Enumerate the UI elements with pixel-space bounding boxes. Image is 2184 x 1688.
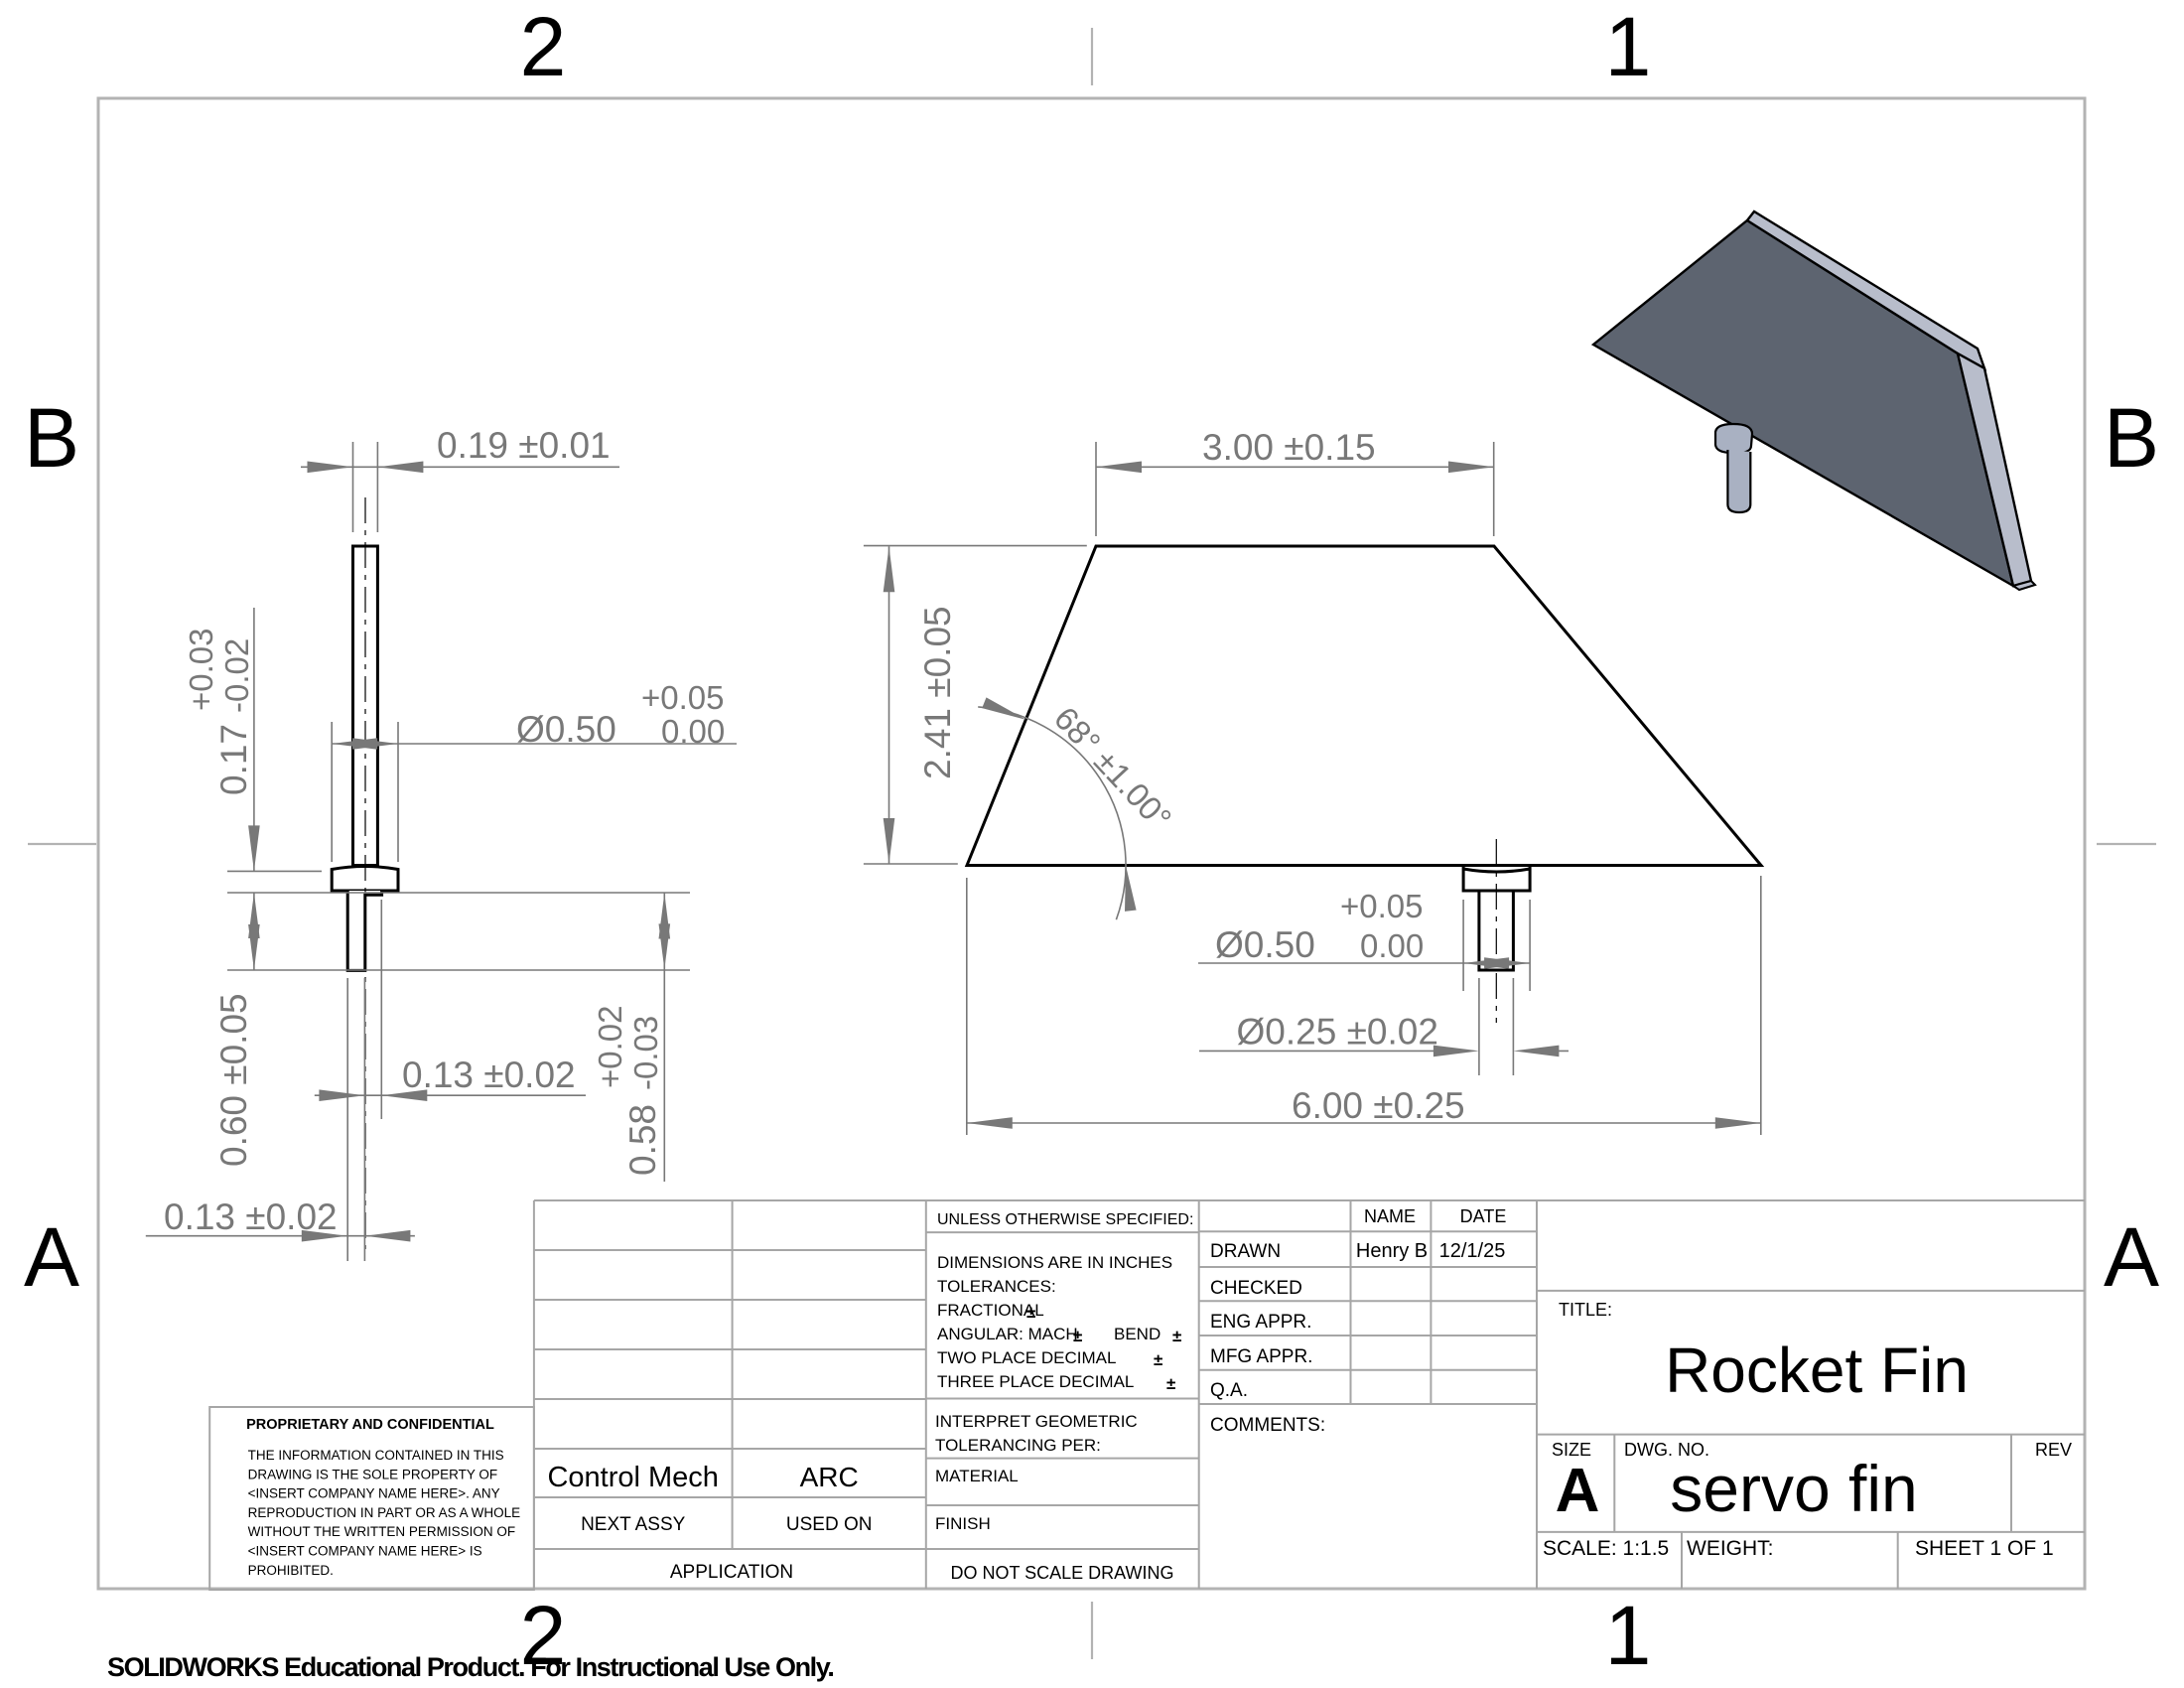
svg-text:±: ± bbox=[1166, 1374, 1175, 1393]
svg-text:<INSERT COMPANY NAME HERE>. A: <INSERT COMPANY NAME HERE>. ANY bbox=[248, 1486, 500, 1501]
svg-text:0.17: 0.17 bbox=[213, 724, 254, 795]
svg-text:Rocket Fin: Rocket Fin bbox=[1665, 1335, 1969, 1406]
svg-text:+0.02: +0.02 bbox=[592, 1006, 628, 1089]
svg-text:A: A bbox=[24, 1210, 79, 1304]
svg-text:DRAWING IS THE SOLE PROPERTY O: DRAWING IS THE SOLE PROPERTY OF bbox=[248, 1467, 498, 1481]
svg-text:ANGULAR: MACH: ANGULAR: MACH bbox=[937, 1325, 1078, 1343]
svg-text:0.00: 0.00 bbox=[1360, 927, 1424, 964]
svg-text:THE INFORMATION CONTAINED IN T: THE INFORMATION CONTAINED IN THIS bbox=[248, 1448, 504, 1463]
svg-text:servo fin: servo fin bbox=[1670, 1452, 1917, 1525]
svg-text:PROHIBITED.: PROHIBITED. bbox=[248, 1563, 334, 1578]
svg-text:A: A bbox=[2104, 1210, 2159, 1304]
svg-text:INTERPRET GEOMETRIC: INTERPRET GEOMETRIC bbox=[935, 1412, 1138, 1431]
svg-text:±: ± bbox=[1073, 1327, 1082, 1345]
svg-text:APPLICATION: APPLICATION bbox=[670, 1562, 793, 1583]
svg-text:±: ± bbox=[1172, 1327, 1181, 1345]
svg-text:NAME: NAME bbox=[1364, 1206, 1416, 1226]
svg-text:+0.05: +0.05 bbox=[641, 679, 725, 716]
svg-text:REPRODUCTION IN PART OR AS A W: REPRODUCTION IN PART OR AS A WHOLE bbox=[248, 1505, 521, 1520]
svg-text:TOLERANCES:: TOLERANCES: bbox=[937, 1277, 1056, 1296]
svg-text:DATE: DATE bbox=[1460, 1206, 1507, 1226]
svg-text:WEIGHT:: WEIGHT: bbox=[1687, 1537, 1774, 1560]
svg-text:1: 1 bbox=[1605, 1589, 1652, 1682]
svg-text:6.00 ±0.25: 6.00 ±0.25 bbox=[1292, 1085, 1465, 1126]
svg-text:REV: REV bbox=[2035, 1440, 2072, 1460]
svg-text:Ø0.25 ±0.02: Ø0.25 ±0.02 bbox=[1237, 1011, 1438, 1052]
svg-text:TITLE:: TITLE: bbox=[1559, 1300, 1612, 1320]
svg-text:Henry B: Henry B bbox=[1356, 1240, 1428, 1262]
svg-text:DIMENSIONS ARE IN INCHES: DIMENSIONS ARE IN INCHES bbox=[937, 1253, 1172, 1272]
svg-text:Control Mech: Control Mech bbox=[547, 1462, 718, 1493]
svg-text:<INSERT COMPANY NAME HERE> IS: <INSERT COMPANY NAME HERE> IS bbox=[248, 1544, 482, 1559]
svg-text:DO NOT SCALE DRAWING: DO NOT SCALE DRAWING bbox=[950, 1563, 1173, 1583]
svg-text:Ø0.50: Ø0.50 bbox=[1215, 924, 1315, 965]
svg-text:+0.03: +0.03 bbox=[183, 629, 219, 712]
svg-text:-0.03: -0.03 bbox=[627, 1016, 664, 1090]
svg-text:A: A bbox=[1556, 1457, 1600, 1525]
svg-text:COMMENTS:: COMMENTS: bbox=[1210, 1415, 1325, 1436]
svg-text:+0.05: +0.05 bbox=[1340, 888, 1424, 924]
svg-text:0.58: 0.58 bbox=[622, 1104, 663, 1176]
svg-text:SHEET 1 OF 1: SHEET 1 OF 1 bbox=[1915, 1537, 2054, 1560]
svg-text:B: B bbox=[24, 391, 79, 485]
svg-text:ARC: ARC bbox=[800, 1462, 859, 1492]
svg-text:CHECKED: CHECKED bbox=[1210, 1278, 1302, 1299]
svg-text:THREE PLACE DECIMAL: THREE PLACE DECIMAL bbox=[937, 1372, 1134, 1391]
svg-text:±: ± bbox=[1026, 1303, 1035, 1322]
svg-text:0.19 ±0.01: 0.19 ±0.01 bbox=[437, 425, 611, 466]
svg-text:PROPRIETARY AND CONFIDENTIAL: PROPRIETARY AND CONFIDENTIAL bbox=[246, 1417, 494, 1433]
svg-text:±: ± bbox=[1154, 1350, 1162, 1369]
svg-text:Q.A.: Q.A. bbox=[1210, 1380, 1248, 1401]
svg-text:0.13 ±0.02: 0.13 ±0.02 bbox=[402, 1055, 576, 1095]
svg-text:MFG APPR.: MFG APPR. bbox=[1210, 1346, 1312, 1367]
svg-text:UNLESS OTHERWISE SPECIFIED:: UNLESS OTHERWISE SPECIFIED: bbox=[937, 1211, 1193, 1228]
svg-text:TOLERANCING PER:: TOLERANCING PER: bbox=[935, 1436, 1101, 1455]
svg-text:FINISH: FINISH bbox=[935, 1514, 991, 1533]
svg-text:USED ON: USED ON bbox=[786, 1514, 873, 1535]
svg-text:SCALE: 1:1.5: SCALE: 1:1.5 bbox=[1543, 1537, 1669, 1560]
svg-text:2: 2 bbox=[520, 0, 567, 93]
svg-text:MATERIAL: MATERIAL bbox=[935, 1467, 1019, 1485]
svg-text:0.60 ±0.05: 0.60 ±0.05 bbox=[213, 993, 254, 1167]
svg-text:WITHOUT THE WRITTEN PERMISSION: WITHOUT THE WRITTEN PERMISSION OF bbox=[248, 1524, 515, 1539]
svg-text:0.13 ±0.02: 0.13 ±0.02 bbox=[164, 1196, 338, 1237]
svg-text:NEXT ASSY: NEXT ASSY bbox=[581, 1514, 686, 1535]
svg-text:TWO PLACE DECIMAL: TWO PLACE DECIMAL bbox=[937, 1348, 1116, 1367]
svg-text:12/1/25: 12/1/25 bbox=[1439, 1240, 1506, 1262]
svg-text:SOLIDWORKS Educational Product: SOLIDWORKS Educational Product. For Inst… bbox=[107, 1652, 833, 1682]
svg-text:BEND: BEND bbox=[1114, 1325, 1160, 1343]
svg-text:ENG APPR.: ENG APPR. bbox=[1210, 1312, 1311, 1333]
svg-text:1: 1 bbox=[1605, 0, 1652, 93]
svg-text:DRAWN: DRAWN bbox=[1210, 1241, 1281, 1262]
svg-text:-0.02: -0.02 bbox=[218, 638, 255, 713]
svg-text:B: B bbox=[2104, 391, 2159, 485]
svg-text:3.00 ±0.15: 3.00 ±0.15 bbox=[1202, 427, 1376, 468]
svg-text:2.41 ±0.05: 2.41 ±0.05 bbox=[917, 606, 958, 779]
